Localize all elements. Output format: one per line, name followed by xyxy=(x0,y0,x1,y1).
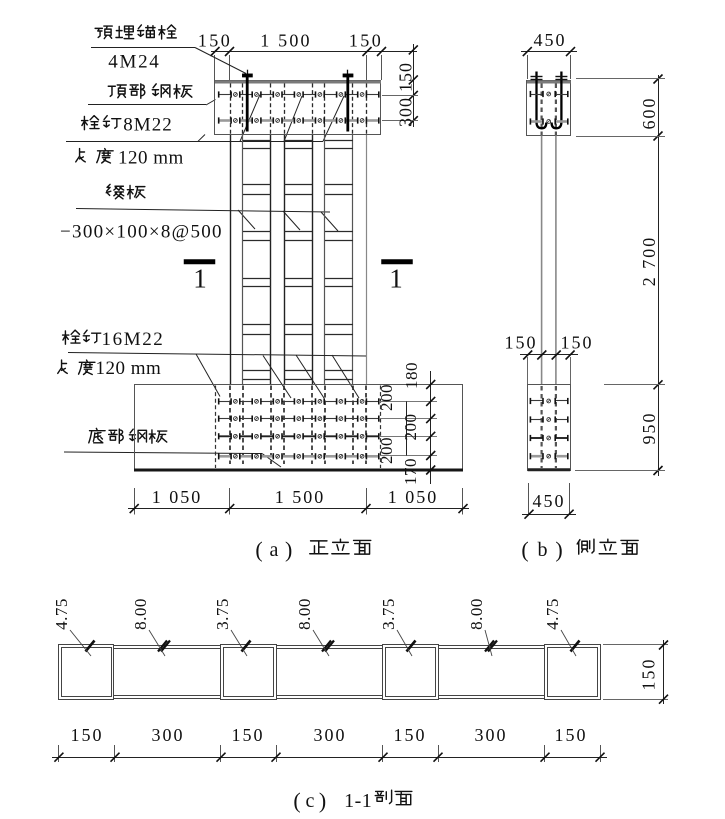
svg-text:1 050: 1 050 xyxy=(388,487,439,507)
svg-text:150: 150 xyxy=(71,725,104,745)
svg-text:300: 300 xyxy=(396,97,416,127)
svg-text:8.00: 8.00 xyxy=(131,598,150,630)
svg-text:150: 150 xyxy=(505,333,538,353)
svg-text:1: 1 xyxy=(193,264,207,294)
svg-text:150: 150 xyxy=(555,725,588,745)
svg-text:a: a xyxy=(270,539,279,561)
svg-text:300: 300 xyxy=(152,725,185,745)
svg-text:300: 300 xyxy=(314,725,347,745)
svg-text:150: 150 xyxy=(349,31,383,51)
svg-text:170: 170 xyxy=(401,458,420,485)
svg-text:450: 450 xyxy=(533,491,566,511)
svg-text:150: 150 xyxy=(198,31,232,51)
svg-text:450: 450 xyxy=(534,30,567,50)
svg-text:(: ( xyxy=(255,537,262,562)
svg-text:c: c xyxy=(306,790,315,812)
svg-text:150: 150 xyxy=(639,658,659,691)
svg-text:−300×100×8@500: −300×100×8@500 xyxy=(60,222,223,243)
svg-text:3.75: 3.75 xyxy=(213,598,232,630)
svg-text:200: 200 xyxy=(401,414,420,441)
svg-text:300: 300 xyxy=(475,725,508,745)
svg-text:8.00: 8.00 xyxy=(467,598,486,630)
svg-text:8.00: 8.00 xyxy=(295,598,314,630)
svg-text:1 500: 1 500 xyxy=(260,31,312,51)
svg-text:b: b xyxy=(538,539,548,561)
svg-text:16M22: 16M22 xyxy=(102,329,165,350)
svg-text:200: 200 xyxy=(377,384,396,411)
svg-text:1 050: 1 050 xyxy=(152,487,203,507)
svg-text:600: 600 xyxy=(639,97,659,130)
svg-text:950: 950 xyxy=(639,412,659,445)
svg-text:8M22: 8M22 xyxy=(123,115,172,136)
svg-text:): ) xyxy=(285,537,292,562)
svg-text:4M24: 4M24 xyxy=(108,52,160,73)
svg-text:(: ( xyxy=(293,788,300,813)
svg-text:150: 150 xyxy=(232,725,265,745)
svg-text:1 500: 1 500 xyxy=(275,487,326,507)
svg-text:4.75: 4.75 xyxy=(543,598,562,630)
svg-text:1-1: 1-1 xyxy=(344,790,372,812)
svg-text:120 mm: 120 mm xyxy=(118,148,184,169)
svg-text:200: 200 xyxy=(377,437,396,464)
svg-text:(: ( xyxy=(521,537,528,562)
svg-text:3.75: 3.75 xyxy=(379,598,398,630)
svg-text:2 700: 2 700 xyxy=(639,236,659,287)
svg-text:150: 150 xyxy=(394,725,427,745)
svg-text:150: 150 xyxy=(396,62,416,92)
svg-text:120 mm: 120 mm xyxy=(96,358,162,379)
svg-text:4.75: 4.75 xyxy=(52,598,71,630)
svg-text:): ) xyxy=(319,788,326,813)
svg-text:180: 180 xyxy=(402,362,421,389)
svg-text:150: 150 xyxy=(561,333,594,353)
svg-text:1: 1 xyxy=(389,264,403,294)
svg-text:): ) xyxy=(555,537,562,562)
